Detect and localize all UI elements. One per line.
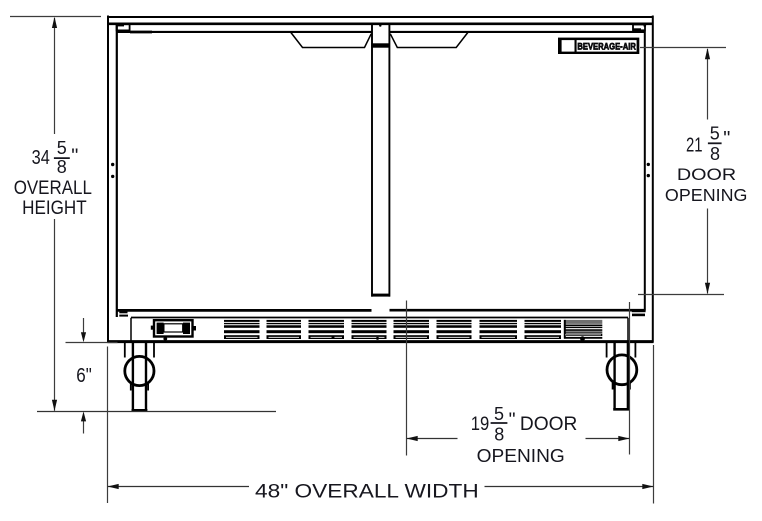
svg-text:8: 8 [710, 144, 720, 164]
svg-text:34: 34 [32, 147, 50, 169]
svg-text:8: 8 [57, 157, 67, 177]
svg-text:5: 5 [494, 404, 504, 424]
svg-text:DOOR: DOOR [520, 413, 578, 435]
svg-text:": " [71, 146, 78, 168]
svg-text:19: 19 [471, 413, 490, 435]
svg-text:BEVERAGE-AIR: BEVERAGE-AIR [577, 42, 636, 53]
svg-text:DOOR: DOOR [677, 165, 736, 184]
svg-text:48" OVERALL WIDTH: 48" OVERALL WIDTH [255, 481, 479, 503]
svg-text:OVERALL: OVERALL [14, 178, 92, 199]
svg-text:": " [723, 128, 730, 150]
svg-text:": " [509, 409, 516, 431]
svg-text:21: 21 [686, 135, 703, 157]
svg-text:5: 5 [710, 124, 720, 144]
svg-text:6": 6" [76, 365, 92, 387]
svg-text:8: 8 [494, 424, 504, 444]
svg-text:5: 5 [57, 138, 67, 158]
svg-text:OPENING: OPENING [665, 185, 748, 205]
svg-text:OPENING: OPENING [477, 445, 565, 466]
svg-text:HEIGHT: HEIGHT [22, 198, 87, 219]
